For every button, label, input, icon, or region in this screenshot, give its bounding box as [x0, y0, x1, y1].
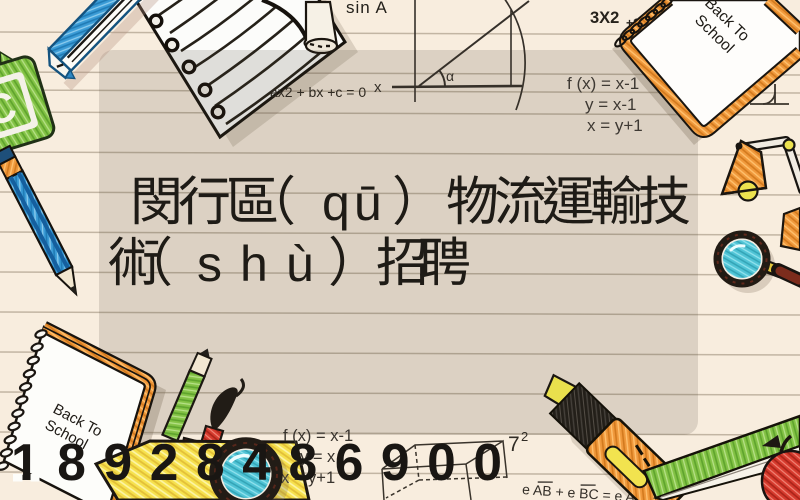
svg-text:3X2: 3X2 — [590, 9, 619, 27]
svg-text:x = y+1: x = y+1 — [587, 116, 643, 135]
svg-text:ù: ù — [286, 236, 314, 292]
svg-text:q: q — [322, 175, 350, 231]
svg-text:sin A: sin A — [346, 0, 388, 17]
svg-text:s: s — [197, 236, 222, 292]
svg-text:18928486900: 18928486900 — [11, 433, 520, 491]
svg-text:ū: ū — [354, 175, 382, 231]
svg-text:f (x) = x-1: f (x) = x-1 — [567, 74, 639, 93]
svg-text:2: 2 — [521, 429, 528, 444]
svg-text:h: h — [240, 236, 268, 292]
svg-text:y = x-1: y = x-1 — [585, 95, 637, 114]
